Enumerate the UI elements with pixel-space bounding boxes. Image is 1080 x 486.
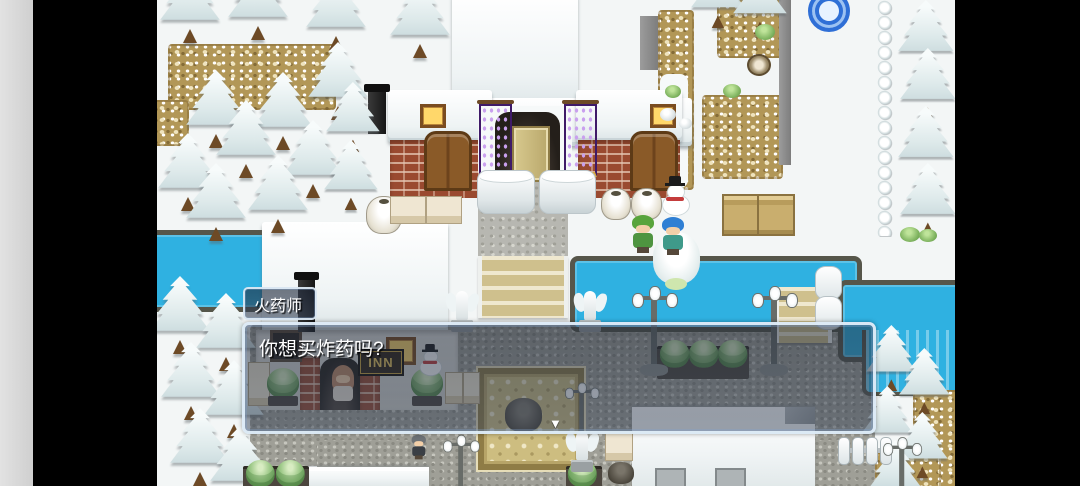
fence-post [838, 437, 850, 465]
wooden-table [605, 431, 633, 461]
game-viewport[interactable]: INN 火药师 你想买炸药吗? ▼ [157, 0, 955, 486]
fence-post [866, 437, 878, 465]
dialog-name-box: 火药师 [243, 287, 317, 320]
street-lamp [883, 432, 920, 486]
pine-tree [159, 0, 221, 49]
building-bottom-window-2 [715, 468, 746, 486]
building-bottomleft-roof [307, 467, 429, 486]
green-bush [755, 24, 775, 40]
purple-banner-left [479, 104, 512, 177]
right-black-bar [955, 0, 1080, 486]
green-bush [723, 84, 741, 98]
left-gray-strip [0, 0, 33, 486]
annex-left-door [424, 131, 472, 191]
building-bottom-window-1 [655, 468, 686, 486]
planter-bush [275, 460, 306, 486]
purple-banner-right [564, 104, 597, 177]
fence-post [852, 437, 864, 465]
stone-cylinder [815, 266, 842, 300]
inn-chimney-cap [294, 272, 319, 280]
wooden-table [426, 196, 462, 224]
dialog-speaker-name: 火药师 [254, 292, 302, 316]
pine-tree [185, 163, 247, 247]
dialog-message: 你想买炸药吗? [259, 334, 384, 361]
snow-stone [660, 108, 676, 121]
screenshot-root: INN 火药师 你想买炸药吗? ▼ [0, 0, 1080, 486]
green-bush [919, 229, 937, 242]
player-character [409, 434, 429, 460]
left-black-bar [33, 0, 157, 486]
snowflake-emblem-icon [808, 0, 850, 32]
street-lamp [443, 430, 478, 486]
cliff-right-block [702, 95, 783, 179]
pine-tree [227, 0, 289, 46]
pine-tree [247, 155, 309, 239]
snow-pillar-left [477, 170, 535, 214]
wooden-crate [757, 194, 795, 236]
stairs-main [478, 256, 568, 318]
retaining-wall-small [640, 16, 658, 70]
green-bush [665, 85, 681, 98]
snow-stone [679, 118, 692, 129]
dark-jar [608, 462, 634, 484]
tree-stump [747, 54, 771, 76]
wooden-crate [722, 194, 760, 236]
wooden-table [390, 196, 426, 224]
white-jar [601, 188, 631, 220]
green-bush [900, 227, 920, 242]
snowman [660, 176, 690, 216]
pine-tree [389, 0, 451, 64]
annex-left-window [420, 104, 446, 128]
npc-green-hair [628, 214, 658, 254]
snowball-fence-column [877, 0, 892, 236]
npc-blue-hair [658, 216, 688, 256]
dialog-continue-arrow[interactable]: ▼ [549, 417, 562, 430]
planter-bush [245, 460, 276, 486]
snow-pillar-right [539, 170, 596, 214]
